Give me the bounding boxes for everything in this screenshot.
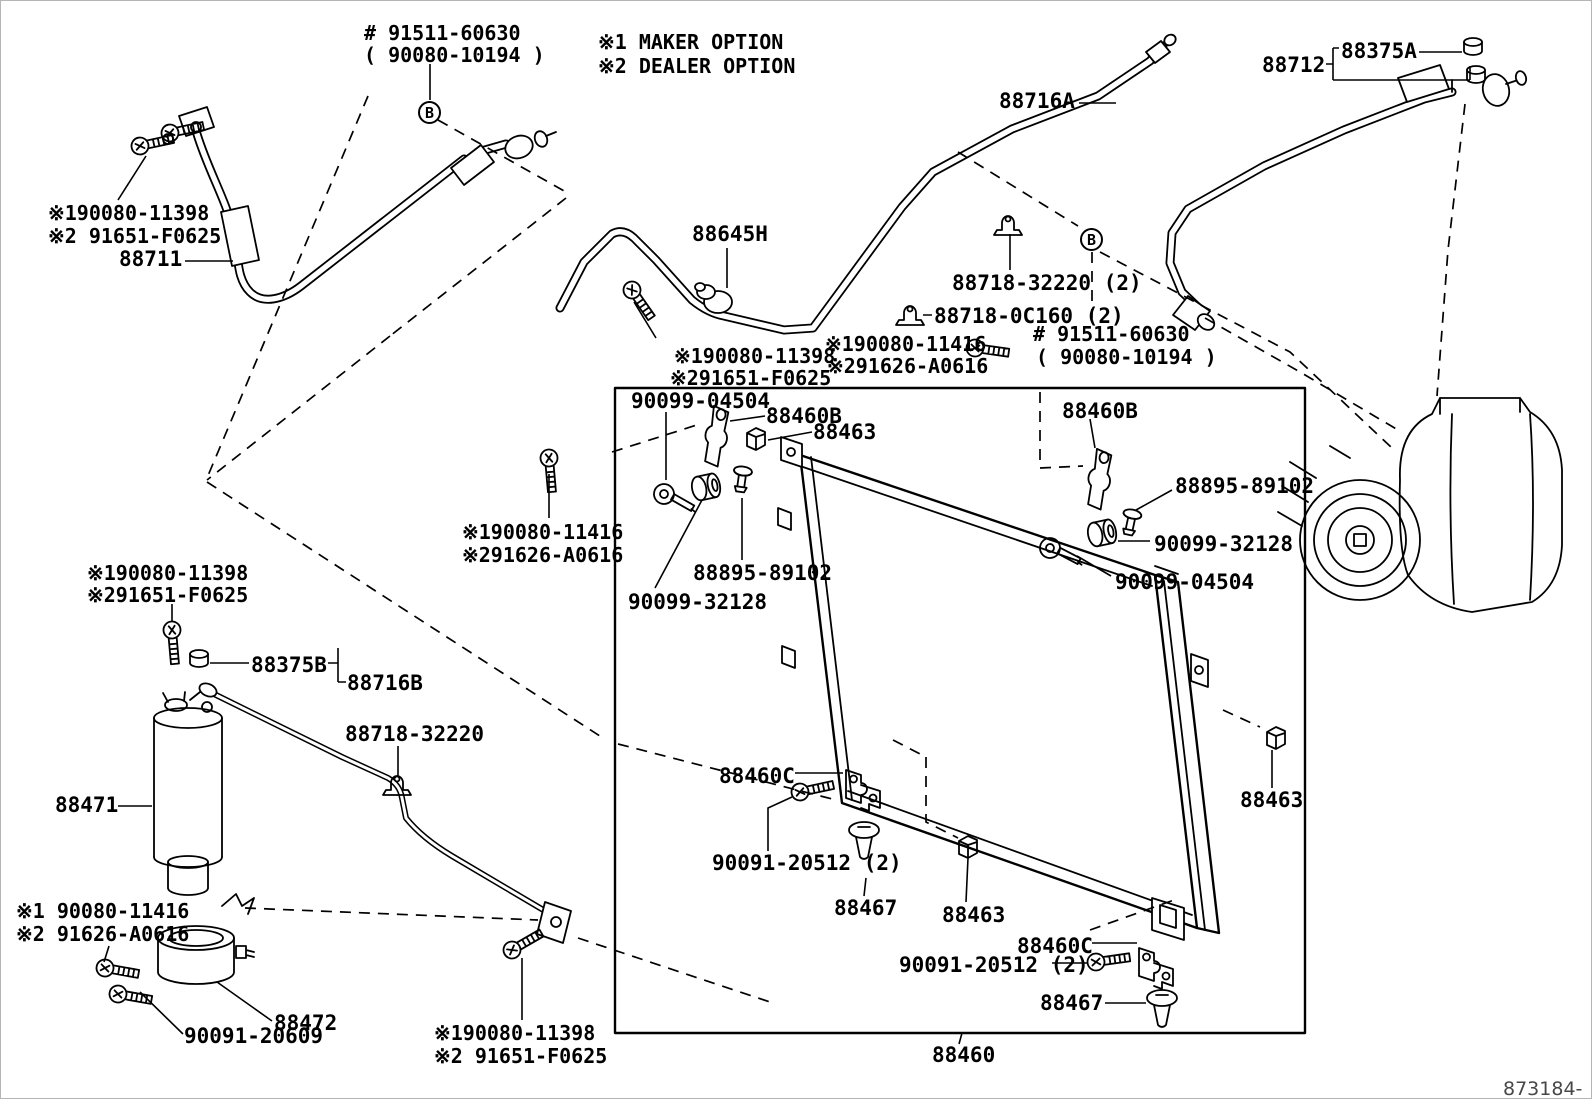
label-88467-b: 88467 xyxy=(1040,993,1103,1014)
pin-icon xyxy=(731,465,752,493)
pipe-clamp-icon xyxy=(896,306,924,325)
note-90080-11416-b: ※190080-11416 xyxy=(462,522,623,542)
label-88463-b: 88463 xyxy=(942,905,1005,926)
label-88375b: 88375B xyxy=(251,655,327,676)
parts-diagram-canvas: B B ※1 MAKER OPTION ※2 DEALER OPTION # 9… xyxy=(0,0,1592,1099)
pipe-88716b xyxy=(190,681,571,943)
clip-icon xyxy=(747,428,765,450)
pipe-clamp-icon xyxy=(994,216,1022,235)
label-88718-32220: 88718-32220 xyxy=(345,724,484,745)
legend-maker-option: ※1 MAKER OPTION xyxy=(598,32,783,52)
label-88895-89102-a: 88895-89102 xyxy=(693,563,832,584)
note-90080-11398-b: ※190080-11398 xyxy=(674,346,835,366)
label-88375a: 88375A xyxy=(1341,41,1417,62)
note-91651-f0625-b: ※291651-F0625 xyxy=(670,368,831,388)
label-88460b-b: 88460B xyxy=(1062,401,1138,422)
pipe-88712 xyxy=(1170,65,1528,333)
label-90091-20512-b: 90091-20512 (2) xyxy=(899,955,1089,976)
label-88463-c: 88463 xyxy=(1240,790,1303,811)
pipe-88711 xyxy=(163,107,556,299)
label-90091-20609: 90091-20609 xyxy=(184,1026,323,1047)
grommet-icon xyxy=(690,472,722,501)
label-91511-60630-top: # 91511-60630 xyxy=(364,23,521,43)
diagram-line-art xyxy=(0,0,1592,1099)
label-88718-32220-x2: 88718-32220 (2) xyxy=(952,273,1142,294)
bolt-icon xyxy=(108,984,153,1008)
note-90080-11416-a: ※190080-11416 xyxy=(825,334,986,354)
bolt-icon xyxy=(163,621,184,665)
connector-marker-B-right: B xyxy=(1080,228,1103,251)
fork-bracket-icon xyxy=(1085,448,1113,510)
mount-bracket-icon xyxy=(1139,948,1173,989)
cap-icon xyxy=(1464,38,1482,55)
label-90099-04504-a: 90099-04504 xyxy=(631,391,770,412)
receiver-drier-88471 xyxy=(154,692,222,895)
label-90091-20512-a: 90091-20512 (2) xyxy=(712,853,902,874)
label-90080-10194-mid: ( 90080-10194 ) xyxy=(1036,347,1217,367)
note-91651-f0625-a: ※2 91651-F0625 xyxy=(48,226,221,246)
label-88460: 88460 xyxy=(932,1045,995,1066)
connector-marker-B-left: B xyxy=(418,101,441,124)
label-88712: 88712 xyxy=(1262,55,1325,76)
label-88471: 88471 xyxy=(55,795,118,816)
note-91626-a0616-c: ※2 91626-A0616 xyxy=(16,924,189,944)
label-88711: 88711 xyxy=(119,249,182,270)
stud-icon xyxy=(1147,990,1177,1027)
note-90080-11416-c: ※1 90080-11416 xyxy=(16,901,189,921)
note-91651-f0625-d: ※2 91651-F0625 xyxy=(434,1046,607,1066)
label-88895-89102-b: 88895-89102 xyxy=(1175,476,1314,497)
bolt-icon xyxy=(620,278,658,323)
note-90080-11398-a: ※190080-11398 xyxy=(48,203,209,223)
compressor xyxy=(1278,398,1562,612)
note-91651-f0625-c: ※291651-F0625 xyxy=(87,585,248,605)
doc-number: 873184- E xyxy=(1503,1078,1592,1099)
label-90099-04504-b: 90099-04504 xyxy=(1115,572,1254,593)
bolt-icon xyxy=(540,449,561,493)
label-88716b: 88716B xyxy=(347,673,423,694)
label-90080-10194-top: ( 90080-10194 ) xyxy=(364,45,545,65)
label-88463-a: 88463 xyxy=(813,422,876,443)
clip-icon xyxy=(959,836,977,858)
note-91626-a0616-a: ※291626-A0616 xyxy=(827,356,988,376)
note-91626-a0616-b: ※291626-A0616 xyxy=(462,545,623,565)
bolt-icon xyxy=(95,958,140,982)
label-88467-a: 88467 xyxy=(834,898,897,919)
bolt-icon xyxy=(1086,949,1130,972)
label-90099-32128-b: 90099-32128 xyxy=(1154,534,1293,555)
label-90099-32128-a: 90099-32128 xyxy=(628,592,767,613)
note-90080-11398-d: ※190080-11398 xyxy=(434,1023,595,1043)
pin-icon xyxy=(1119,508,1142,537)
legend-dealer-option: ※2 DEALER OPTION xyxy=(598,56,795,76)
cap-icon xyxy=(190,650,208,667)
fork-bracket-icon xyxy=(702,405,730,467)
note-90080-11398-c: ※190080-11398 xyxy=(87,563,248,583)
label-88716a: 88716A xyxy=(999,91,1075,112)
label-88460c-b: 88460C xyxy=(1017,936,1093,957)
label-88460c-a: 88460C xyxy=(719,766,795,787)
label-88645h: 88645H xyxy=(692,224,768,245)
clip-icon xyxy=(1267,727,1285,749)
label-91511-60630-mid: # 91511-60630 xyxy=(1033,324,1190,344)
grommet-icon xyxy=(1086,518,1118,547)
